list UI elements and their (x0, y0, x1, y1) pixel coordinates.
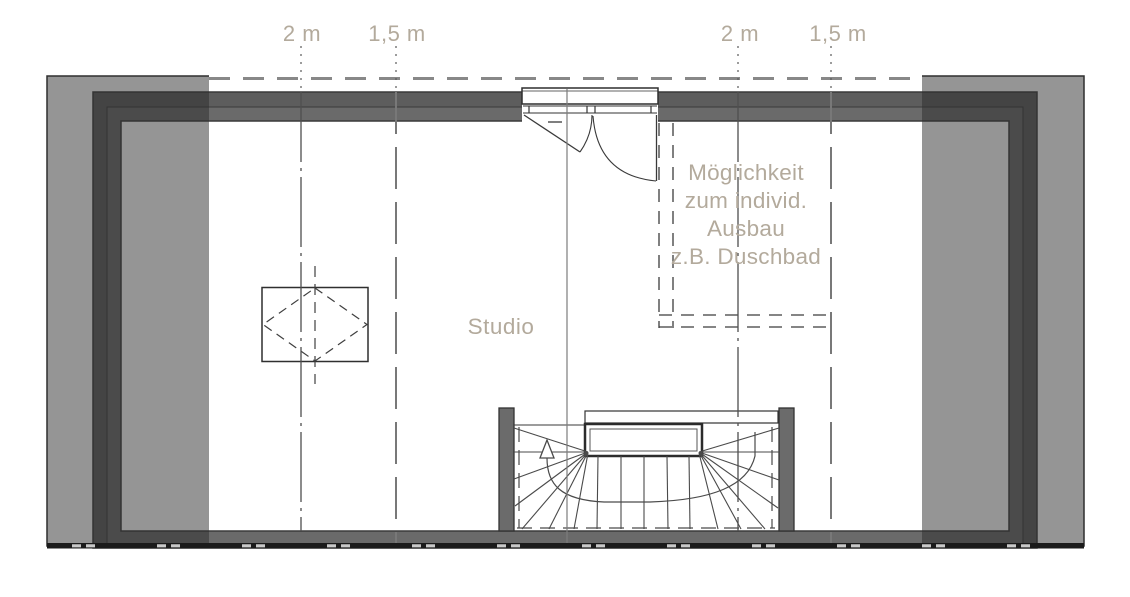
stair-landing-rail (585, 411, 778, 423)
dim-label-right-1-5m: 1,5 m (809, 21, 867, 46)
annotation-line-4: z.B. Duschbad (671, 244, 821, 269)
low-headroom-overlay-right (922, 76, 1084, 546)
low-headroom-overlay-left (47, 76, 209, 546)
room-label: Studio (468, 314, 535, 339)
attic-floor-plan: 2 m 1,5 m 2 m 1,5 m Studio Möglichkeit z… (0, 0, 1130, 597)
dim-label-right-2m: 2 m (721, 21, 759, 46)
stair-post-left (499, 408, 514, 531)
stair-well-box-inner (590, 429, 697, 451)
annotation-line-3: Ausbau (707, 216, 785, 241)
annotation-line-2: zum individ. (685, 188, 807, 213)
transom-window (522, 88, 658, 104)
annotation-line-1: Möglichkeit (688, 160, 804, 185)
stair-post-right (779, 408, 794, 531)
dim-label-left-1-5m: 1,5 m (368, 21, 426, 46)
floor-plan-svg: 2 m 1,5 m 2 m 1,5 m Studio Möglichkeit z… (0, 0, 1130, 597)
dim-label-left-2m: 2 m (283, 21, 321, 46)
